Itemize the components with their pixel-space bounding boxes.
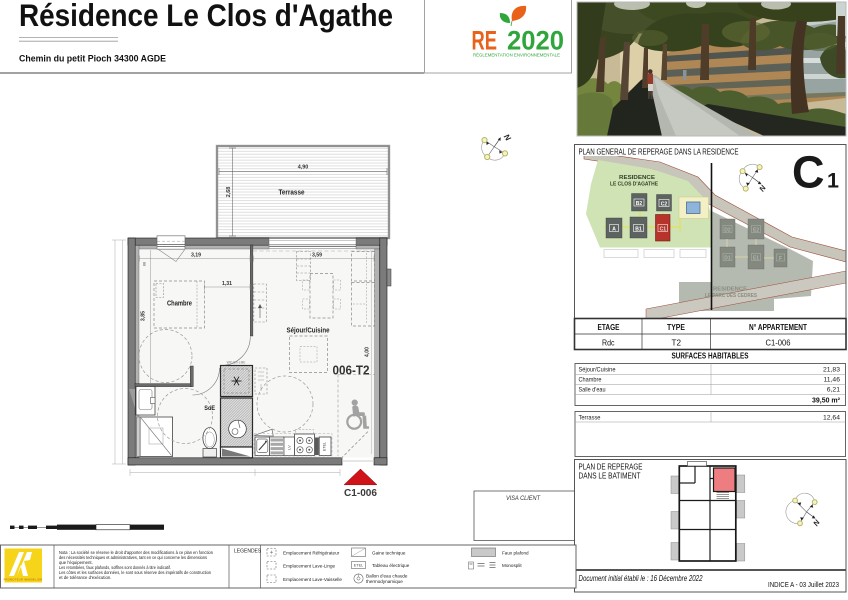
- svg-text:LE CLOS D'AGATHE: LE CLOS D'AGATHE: [610, 182, 658, 188]
- svg-text:Emplacement Réfrigérateur: Emplacement Réfrigérateur: [283, 551, 340, 556]
- svg-text:C: C: [792, 147, 825, 198]
- svg-text:D1: D1: [724, 256, 731, 262]
- svg-text:PROMOTEUR IMMOBILIER: PROMOTEUR IMMOBILIER: [4, 578, 43, 582]
- svg-text:39,50 m²: 39,50 m²: [812, 398, 841, 405]
- svg-text:Faux plafond: Faux plafond: [502, 551, 529, 556]
- svg-text:thermodynamique: thermodynamique: [366, 579, 403, 584]
- svg-text:F: F: [779, 256, 782, 262]
- svg-text:D2: D2: [724, 228, 731, 234]
- svg-text:B2: B2: [636, 201, 643, 207]
- svg-text:Gaine technique: Gaine technique: [372, 551, 406, 556]
- svg-text:Chambre: Chambre: [579, 377, 602, 384]
- svg-text:Document initial établi le : 1: Document initial établi le : 16 Décembre…: [579, 574, 704, 583]
- svg-text:E1: E1: [753, 256, 759, 262]
- svg-text:INDICE A - 03 Juillet 2023: INDICE A - 03 Juillet 2023: [768, 580, 839, 589]
- svg-text:RÉGLEMENTATION ENVIRONNEMENTAL: RÉGLEMENTATION ENVIRONNEMENTALE: [473, 52, 560, 57]
- svg-text:1: 1: [827, 169, 839, 193]
- svg-text:C1-006: C1-006: [766, 339, 791, 348]
- svg-text:C2: C2: [661, 202, 668, 208]
- svg-text:RESIDENCE: RESIDENCE: [619, 175, 655, 181]
- svg-text:RESIDENCE: RESIDENCE: [713, 287, 748, 293]
- svg-text:RE: RE: [472, 26, 498, 56]
- svg-text:3,85: 3,85: [141, 311, 147, 321]
- svg-text:PLAN GENERAL DE REPERAGE DANS: PLAN GENERAL DE REPERAGE DANS LA RESIDEN…: [579, 148, 739, 157]
- svg-text:Terrasse: Terrasse: [279, 188, 305, 197]
- svg-text:LEGENDES: LEGENDES: [234, 549, 262, 555]
- svg-text:2020: 2020: [507, 26, 564, 56]
- svg-text:Ballon d'eau chaude: Ballon d'eau chaude: [366, 574, 408, 579]
- svg-text:Résidence Le Clos d'Agathe: Résidence Le Clos d'Agathe: [19, 0, 393, 33]
- svg-text:Emplacement Lave-Linge: Emplacement Lave-Linge: [283, 564, 336, 569]
- svg-text:VISA CLIENT: VISA CLIENT: [506, 496, 541, 502]
- svg-text:PLAN DE REPERAGE: PLAN DE REPERAGE: [579, 463, 643, 472]
- svg-text:88: 88: [143, 262, 147, 266]
- svg-text:A: A: [612, 227, 616, 233]
- svg-text:3,59: 3,59: [312, 253, 322, 259]
- svg-text:Salle d'eau: Salle d'eau: [579, 387, 606, 394]
- svg-text:LV: LV: [287, 445, 292, 450]
- svg-text:ETEL: ETEL: [354, 564, 364, 568]
- svg-text:4,00: 4,00: [365, 347, 371, 357]
- svg-text:LE PARC DES CEDRES: LE PARC DES CEDRES: [705, 293, 758, 299]
- svg-text:TYPE: TYPE: [667, 323, 685, 332]
- svg-text:Terrasse: Terrasse: [579, 415, 601, 422]
- svg-text:SdE: SdE: [204, 405, 215, 412]
- svg-text:et de tolérance d'exécution.: et de tolérance d'exécution.: [59, 575, 111, 580]
- svg-text:12,64: 12,64: [823, 415, 840, 422]
- svg-text:Séjour/Cuisine: Séjour/Cuisine: [287, 326, 330, 335]
- svg-text:T2: T2: [672, 339, 682, 348]
- svg-text:3,19: 3,19: [191, 253, 201, 259]
- svg-text:ETEL: ETEL: [323, 442, 327, 451]
- svg-text:Chambre: Chambre: [167, 299, 192, 308]
- svg-text:21,83: 21,83: [823, 367, 840, 374]
- svg-text:4,90: 4,90: [298, 165, 309, 171]
- svg-text:6,21: 6,21: [827, 387, 840, 394]
- svg-text:Emplacement Lave-Vaisselle: Emplacement Lave-Vaisselle: [283, 577, 342, 582]
- svg-text:DANS LE BATIMENT: DANS LE BATIMENT: [579, 472, 641, 481]
- svg-text:SURFACES HABITABLES: SURFACES HABITABLES: [672, 352, 750, 361]
- svg-text:Séjour/Cuisine: Séjour/Cuisine: [579, 367, 616, 374]
- svg-text:Chemin du petit Pioch 34300 A: Chemin du petit Pioch 34300 AGDE: [19, 54, 166, 65]
- svg-text:11,46: 11,46: [823, 377, 840, 384]
- svg-text:Rdc: Rdc: [602, 339, 615, 348]
- svg-text:B1: B1: [635, 227, 642, 233]
- svg-text:Tableau électrique: Tableau électrique: [372, 563, 410, 568]
- svg-text:C1: C1: [660, 227, 667, 233]
- svg-text:1,31: 1,31: [222, 281, 232, 287]
- svg-text:2,68: 2,68: [226, 187, 232, 198]
- svg-text:E2: E2: [753, 228, 759, 234]
- svg-text:WP dxh-LME: WP dxh-LME: [227, 361, 246, 365]
- svg-text:C1-006: C1-006: [344, 488, 377, 499]
- svg-text:N° APPARTEMENT: N° APPARTEMENT: [749, 323, 807, 332]
- svg-text:ETAGE: ETAGE: [598, 323, 620, 332]
- svg-text:Monosplit: Monosplit: [502, 563, 522, 568]
